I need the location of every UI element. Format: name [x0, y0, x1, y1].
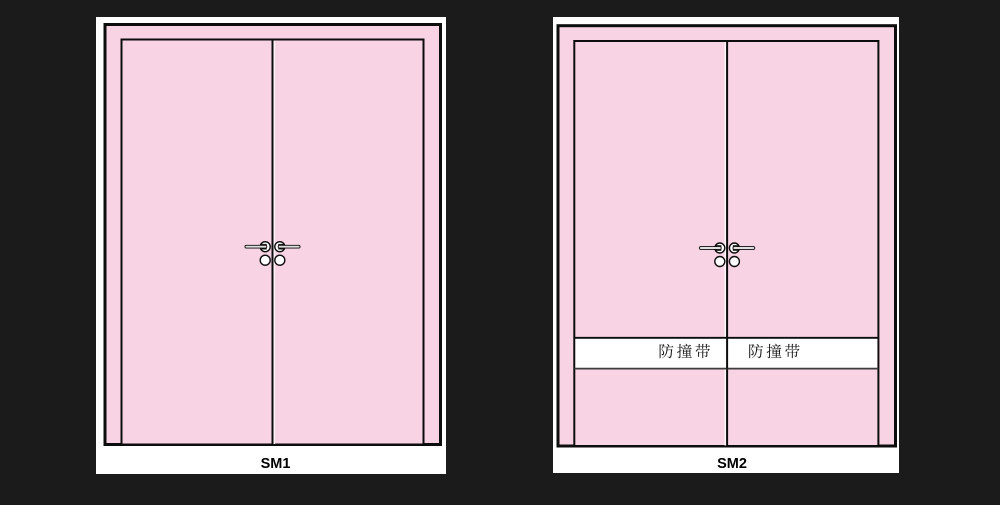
svg-text:SM2: SM2: [717, 456, 747, 472]
svg-text:SM1: SM1: [261, 456, 291, 472]
